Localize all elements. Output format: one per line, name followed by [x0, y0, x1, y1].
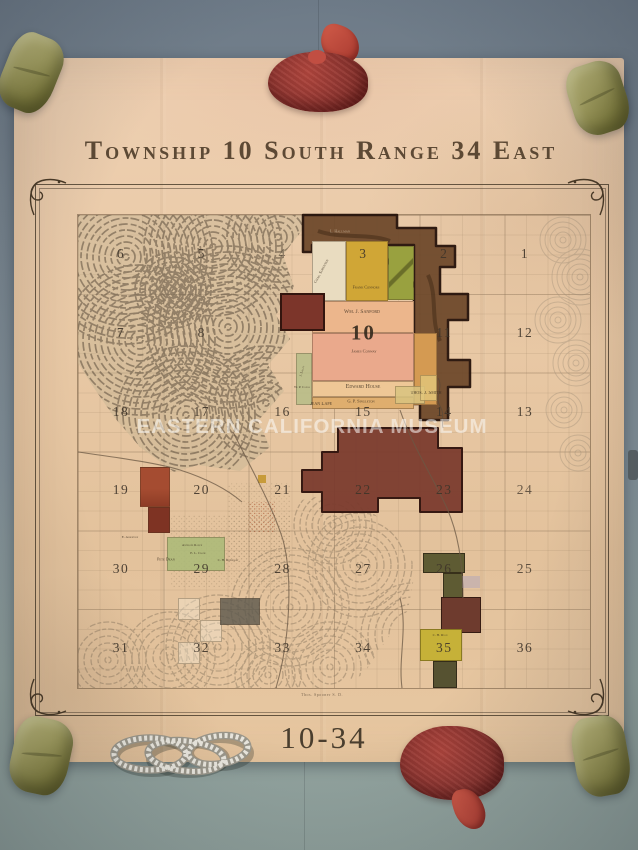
- section-number-11: 11: [436, 325, 452, 341]
- section-number-12: 12: [517, 325, 534, 341]
- section-number-27: 27: [355, 561, 372, 577]
- section-number-13: 13: [517, 404, 534, 420]
- section-number-9: 9: [278, 325, 286, 341]
- parcel-label: C. H. Rhinehart: [218, 558, 239, 562]
- sandbag-weight-bottom-right: [567, 712, 634, 800]
- parcel-label: E. Albertson: [122, 535, 138, 539]
- township-section-grid: Chas. SorensenFrank ConnorsL. HallmanWm.…: [78, 215, 590, 688]
- section-number-1: 1: [521, 246, 529, 262]
- parcel-label: Antelope Ranch: [182, 543, 202, 547]
- section-number-29: 29: [194, 561, 211, 577]
- section-number-32: 32: [194, 640, 211, 656]
- section-number-21: 21: [274, 482, 291, 498]
- parcel-label: W. P. Canal: [294, 385, 310, 389]
- section-number-7: 7: [117, 325, 125, 341]
- section-number-20: 20: [194, 482, 211, 498]
- section-number-4: 4: [278, 246, 286, 262]
- parcel-label: L. Hallman: [330, 229, 350, 234]
- parcel-label: C. H. Ryan: [433, 633, 448, 637]
- parcel-label: E. L. Crane: [190, 551, 206, 555]
- parcel-label: Wm. J. Sanford: [344, 309, 380, 315]
- section-number-18: 18: [113, 404, 130, 420]
- corner-flourish-bottom-left: [28, 677, 68, 717]
- parcel-label: James Conway: [351, 349, 376, 354]
- section-number-31: 31: [113, 640, 130, 656]
- red-mesh-bag-top: [262, 26, 374, 114]
- parcel-label: Frank Connors: [353, 285, 380, 290]
- map-sheet-canvas: Township 10 South Range 34 East: [14, 58, 624, 762]
- section-number-10: 10: [351, 320, 376, 345]
- section-number-33: 33: [274, 640, 291, 656]
- photo-edge-object: [628, 450, 638, 480]
- section-number-30: 30: [113, 561, 130, 577]
- mesh-bag-body: [400, 726, 504, 800]
- section-number-6: 6: [117, 246, 125, 262]
- trail-line: [400, 598, 403, 688]
- section-number-34: 34: [355, 640, 372, 656]
- watermark-text: EASTERN CALIFORNIA MUSEUM: [136, 415, 487, 439]
- parcel-label: Edward House: [346, 384, 381, 390]
- section-number-2: 2: [440, 246, 448, 262]
- section-number-22: 22: [355, 482, 372, 498]
- map-title: Township 10 South Range 34 East: [85, 136, 557, 166]
- section-number-5: 5: [198, 246, 206, 262]
- section-number-25: 25: [517, 561, 534, 577]
- section-number-35: 35: [436, 640, 453, 656]
- section-number-8: 8: [198, 325, 206, 341]
- mesh-bag-knot: [308, 50, 326, 64]
- roads-overlay: [78, 215, 590, 688]
- surveyor-credit: Thos. Spooner S. D.: [301, 692, 343, 697]
- corner-flourish-top-right: [566, 177, 606, 217]
- corner-flourish-top-left: [28, 177, 68, 217]
- section-number-36: 36: [517, 640, 534, 656]
- section-number-19: 19: [113, 482, 130, 498]
- section-number-26: 26: [436, 561, 453, 577]
- photo-of-township-map: Township 10 South Range 34 East: [0, 0, 638, 850]
- section-number-23: 23: [436, 482, 453, 498]
- parcel-label: Pete Dean: [157, 557, 175, 562]
- parcel-label: Thos. J. Smith: [410, 390, 441, 396]
- red-mesh-bag-bottom: [398, 724, 510, 834]
- background-seam-bottom: [304, 762, 305, 850]
- parcel-label: Jean Lape: [310, 401, 332, 407]
- white-rope-coil: [106, 722, 266, 786]
- section-number-28: 28: [274, 561, 291, 577]
- sheet-number-label: 10-34: [280, 720, 367, 756]
- section-number-3: 3: [359, 246, 367, 262]
- trail-line: [78, 452, 242, 502]
- section-number-24: 24: [517, 482, 534, 498]
